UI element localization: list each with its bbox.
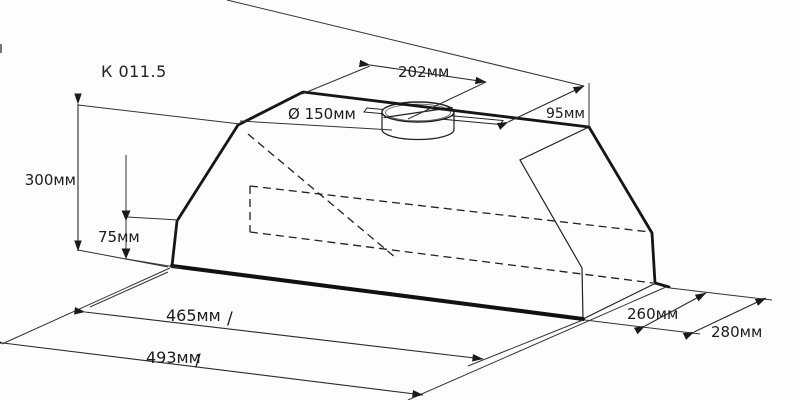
extension-lines (2, 0, 772, 400)
dim-label-duct-diameter: Ø 150мм (288, 105, 356, 123)
dim-label-202mm: 202мм (398, 63, 449, 81)
exhaust-duct (382, 102, 454, 140)
dim-label-300mm: 300мм (25, 171, 76, 189)
dim-label-280mm: 280мм (711, 323, 762, 341)
dim-arrow-75mm-bottom (122, 249, 131, 260)
hidden-edges (248, 134, 653, 283)
dim-line-493mm (3, 343, 423, 395)
dim-label-95mm: 95мм (546, 106, 585, 122)
dim-label-493mm: 493мм (146, 348, 201, 367)
dim-label-260mm: 260мм (627, 305, 678, 323)
dim-label-465mm-slash: / (227, 309, 233, 329)
dim-label-465mm: 465мм (166, 306, 221, 325)
hood-dimension-diagram: К 011.5 202мм Ø 150мм 95мм 300мм 75мм 46… (0, 0, 800, 400)
dim-label-75mm: 75мм (98, 228, 140, 246)
dim-line-465mm (85, 312, 483, 359)
model-title: К 011.5 (101, 62, 167, 81)
diagram-canvas: К 011.5 202мм Ø 150мм 95мм 300мм 75мм 46… (0, 0, 800, 400)
dim-arrow-75mm-top (122, 211, 131, 222)
dim-label-493mm-slash: / (195, 351, 201, 371)
